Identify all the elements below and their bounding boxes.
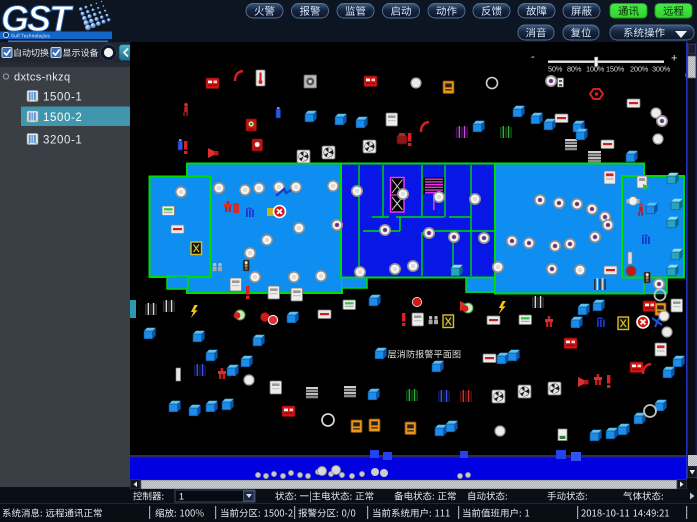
svg-text:50%: 50% [548,65,563,74]
svg-text:1500-2: 1500-2 [43,112,82,124]
svg-text:80%: 80% [567,65,582,74]
svg-text:+: + [671,53,677,65]
svg-text:200%: 200% [630,65,649,74]
svg-text:1: 1 [179,492,184,502]
svg-text:3200-1: 3200-1 [43,135,82,147]
svg-text:150%: 150% [606,65,625,74]
svg-text:-: - [531,51,535,63]
svg-text:300%: 300% [652,65,671,74]
svg-text:100%: 100% [586,65,605,74]
svg-text:dxtcs-nkzq: dxtcs-nkzq [14,72,71,84]
svg-text:1500-1: 1500-1 [43,92,82,104]
